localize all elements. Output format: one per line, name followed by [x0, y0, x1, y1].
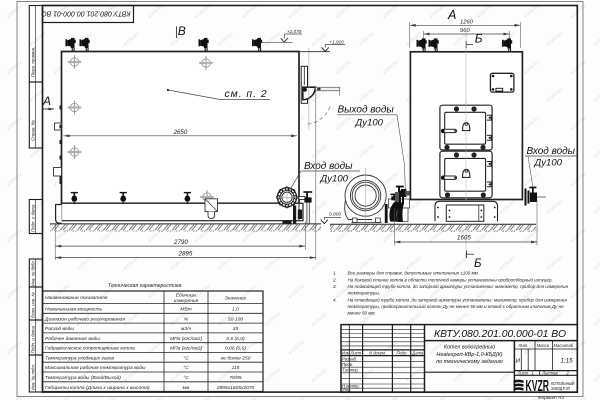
svg-text:Ду100: Ду100 [534, 158, 563, 169]
svg-text:Гидравлическое сопротивление к: Гидравлическое сопротивление котла [45, 346, 135, 352]
svg-text:по техническому заданию: по техническому заданию [436, 359, 503, 365]
svg-text:МПа (кгс/см2): МПа (кгс/см2) [170, 346, 202, 352]
svg-text:1260: 1260 [460, 19, 474, 25]
svg-text:Листов: Листов [541, 371, 558, 376]
svg-text:температуры.: температуры. [348, 291, 381, 296]
svg-text:°С: °С [183, 355, 189, 361]
svg-text:+2,070: +2,070 [287, 29, 302, 34]
svg-text:КВТУ.080.201.00.000-01 ВО: КВТУ.080.201.00.000-01 ВО [434, 329, 566, 340]
svg-text:3.: 3. [333, 284, 337, 289]
svg-text:Лит.: Лит. [518, 343, 529, 348]
svg-text:Масса: Масса [537, 343, 550, 348]
svg-text:Инв. № подл.: Инв. № подл. [30, 364, 35, 390]
svg-text:менее 50 мм.: менее 50 мм. [348, 311, 376, 316]
svg-text:Инв. № дубл.: Инв. № дубл. [30, 260, 35, 286]
svg-text:Диапазон рабочего регулировани: Диапазон рабочего регулирования [44, 316, 125, 322]
svg-text:Формат А3: Формат А3 [538, 395, 565, 400]
svg-text:Подп. и дата: Подп. и дата [30, 325, 35, 353]
svg-text:Разраб.: Разраб. [342, 356, 357, 361]
svg-text:А: А [447, 8, 456, 22]
svg-text:°С: °С [183, 365, 189, 371]
svg-text:0,06 (0,6): 0,06 (0,6) [225, 346, 246, 352]
svg-text:0,6 (6,0): 0,6 (6,0) [226, 336, 245, 342]
svg-text:Изм.: Изм. [342, 350, 351, 355]
svg-text:70/95: 70/95 [229, 375, 242, 381]
svg-text:Перв. примен.: Перв. примен. [30, 46, 35, 77]
svg-text:1605: 1605 [457, 235, 471, 242]
svg-text:измерения: измерения [174, 299, 199, 304]
svg-text:Максимальная рабочая температу: Максимальная рабочая температура воды [45, 365, 146, 371]
svg-text:А: А [42, 94, 51, 108]
svg-text:°С: °С [183, 375, 189, 381]
svg-text:не более 250: не более 250 [221, 355, 251, 361]
svg-text:1: 1 [532, 371, 534, 376]
svg-text:Лист: Лист [350, 350, 362, 355]
svg-text:Масштаб: Масштаб [554, 343, 574, 348]
svg-text:МВт: МВт [180, 307, 191, 313]
svg-text:Ду100: Ду100 [355, 117, 384, 128]
svg-text:Б: Б [475, 31, 483, 45]
svg-text:Номинальная мощность: Номинальная мощность [45, 307, 103, 313]
svg-text:Техническая характеристика: Техническая характеристика [108, 283, 182, 289]
svg-text:2895: 2895 [178, 250, 193, 257]
svg-text:Дата: Дата [411, 350, 424, 355]
svg-text:1:15: 1:15 [561, 358, 574, 365]
svg-text:Вход воды: Вход воды [527, 146, 576, 157]
svg-text:1.: 1. [333, 271, 337, 276]
svg-text:температуры, предохранительный: температуры, предохранительный клапан Ду… [348, 303, 565, 309]
svg-text:ЗАВОД РЭП: ЗАВОД РЭП [551, 386, 570, 391]
svg-text:50-100: 50-100 [228, 316, 244, 322]
svg-text:2.: 2. [332, 277, 337, 282]
svg-text:Утв.: Утв. [342, 388, 352, 393]
svg-text:Heatexpert-КВр-1,0-КБД(К): Heatexpert-КВр-1,0-КБД(К) [436, 352, 502, 358]
svg-text:115: 115 [232, 365, 240, 371]
svg-text:Выход воды: Выход воды [338, 105, 395, 116]
svg-text:1,0: 1,0 [232, 307, 239, 313]
svg-text:Значение: Значение [225, 296, 247, 302]
svg-text:2650: 2650 [173, 129, 188, 136]
svg-text:N докум.: N докум. [369, 350, 386, 355]
svg-text:На подводящей трубе котла, д: На подводящей трубе котла, до запорной а… [348, 283, 569, 289]
svg-text:МПа (кгс/см2): МПа (кгс/см2) [170, 336, 202, 342]
svg-text:Габариты котла (Длина х ширина: Габариты котла (Длина х ширина х высота) [45, 385, 150, 391]
svg-text:35: 35 [233, 326, 239, 332]
svg-text:Т.контр.: Т.контр. [342, 368, 359, 373]
svg-text:КВТУ.080.201.00.000-01 ВО: КВТУ.080.201.00.000-01 ВО [41, 10, 131, 17]
svg-text:Пров.: Пров. [342, 362, 353, 367]
svg-text:Все размеры для справок, допус: Все размеры для справок, допустимые откл… [348, 271, 480, 276]
svg-text:Единицы: Единицы [176, 293, 197, 299]
svg-text:Температура уходящих газов: Температура уходящих газов [45, 355, 114, 361]
svg-text:мм: мм [183, 386, 190, 391]
svg-text:Лист: Лист [517, 371, 529, 376]
svg-text:На боковой стенке котла в обла: На боковой стенке котла в области топочн… [348, 276, 553, 282]
svg-text:Б: Б [474, 258, 482, 270]
svg-text:Справ. №: Справ. № [30, 120, 35, 141]
svg-text:м3/ч: м3/ч [181, 326, 191, 332]
svg-text:Наименование показателя: Наименование показателя [45, 295, 108, 301]
svg-text:Ду100: Ду100 [320, 174, 349, 185]
svg-text:Подп.: Подп. [397, 350, 408, 355]
svg-text:На отводящей трубе котла ,до з: На отводящей трубе котла ,до запорной ар… [348, 297, 568, 303]
svg-text:Взам. инв. №: Взам. инв. № [30, 292, 35, 318]
svg-text:960: 960 [460, 28, 470, 34]
svg-text:%: % [184, 316, 189, 322]
svg-text:В: В [178, 24, 186, 38]
svg-text:KVZR: KVZR [526, 378, 550, 395]
svg-text:Вход воды: Вход воды [304, 161, 353, 172]
svg-text:Подп. и дата: Подп. и дата [30, 204, 35, 232]
svg-text:2790: 2790 [173, 239, 188, 246]
svg-text:4.: 4. [333, 298, 337, 303]
svg-text:Температура воды (Вход/Выход): Температура воды (Вход/Выход) [45, 375, 121, 381]
svg-text:см. п. 2: см. п. 2 [225, 89, 268, 100]
svg-text:+1,920: +1,920 [330, 40, 345, 45]
svg-text:2895х1605х2070: 2895х1605х2070 [216, 385, 255, 391]
svg-text:Расход воды: Расход воды [45, 326, 74, 332]
svg-text:Рабочее давление воды: Рабочее давление воды [45, 336, 100, 342]
svg-text:0.000: 0.000 [329, 212, 341, 218]
svg-text:Котел водогрейный: Котел водогрейный [444, 344, 495, 351]
